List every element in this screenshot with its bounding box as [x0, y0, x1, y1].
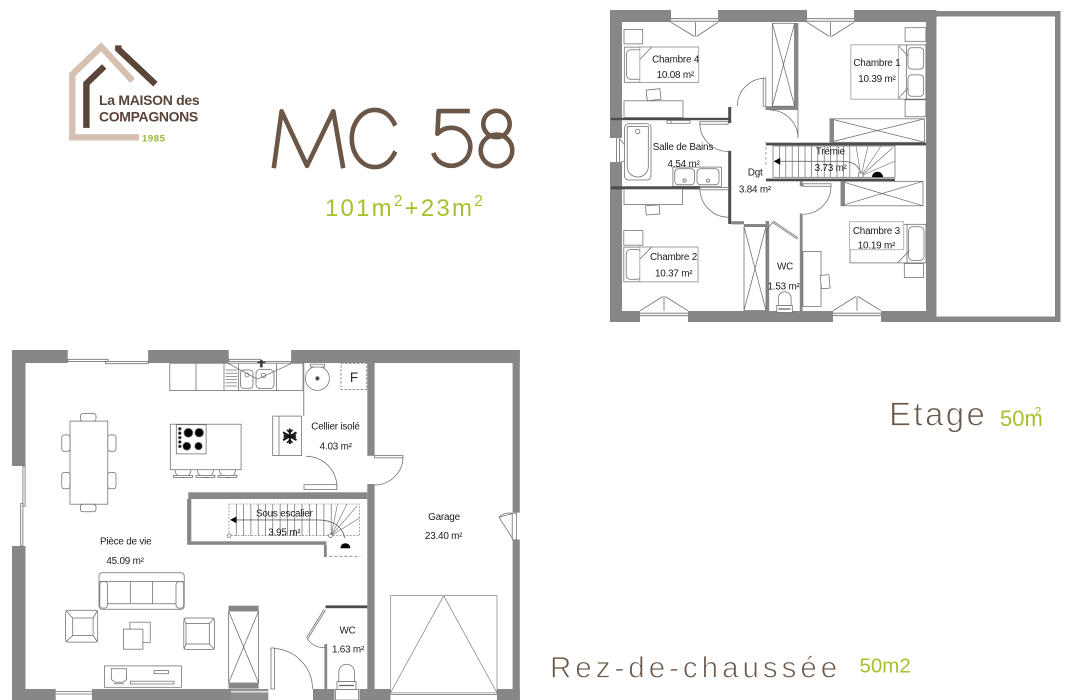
svg-text:Chambre 3: Chambre 3: [853, 226, 901, 237]
svg-text:Dgt: Dgt: [748, 168, 763, 179]
svg-text:3.95 m²: 3.95 m²: [268, 527, 301, 538]
svg-text:10.37 m²: 10.37 m²: [655, 269, 693, 280]
svg-text:Chambre 4: Chambre 4: [652, 54, 700, 65]
svg-text:1.53 m²: 1.53 m²: [768, 282, 801, 293]
svg-text:1.63 m²: 1.63 m²: [332, 644, 365, 655]
svg-text:Garage: Garage: [428, 512, 460, 523]
svg-text:1985: 1985: [142, 133, 166, 144]
svg-text:F: F: [350, 370, 358, 385]
svg-text:Sous escalier: Sous escalier: [256, 509, 314, 520]
svg-text:COMPAGNONS: COMPAGNONS: [99, 108, 198, 124]
svg-text:2: 2: [1035, 407, 1041, 419]
svg-text:Etage: Etage: [889, 396, 987, 433]
svg-text:45.09 m²: 45.09 m²: [106, 556, 144, 567]
svg-text:4.03 m²: 4.03 m²: [320, 441, 353, 452]
svg-text:La MAISON des: La MAISON des: [99, 92, 200, 108]
svg-text:Salle de Bains: Salle de Bains: [653, 142, 714, 153]
svg-text:Rez-de-chaussée: Rez-de-chaussée: [550, 652, 841, 685]
svg-text:101m2+23m2: 101m2+23m2: [325, 193, 485, 222]
svg-text:Trémie: Trémie: [816, 147, 846, 158]
svg-text:3.84 m²: 3.84 m²: [739, 185, 772, 196]
svg-text:Cellier isolé: Cellier isolé: [311, 422, 360, 433]
svg-text:10.39 m²: 10.39 m²: [858, 74, 896, 85]
svg-text:Chambre 2: Chambre 2: [650, 252, 697, 263]
svg-text:23.40 m²: 23.40 m²: [425, 531, 463, 542]
svg-text:10.08 m²: 10.08 m²: [657, 70, 695, 81]
svg-text:4.54 m²: 4.54 m²: [668, 159, 701, 170]
svg-text:Pièce de vie: Pièce de vie: [100, 536, 152, 547]
svg-text:WC: WC: [777, 262, 793, 273]
svg-text:10.19 m²: 10.19 m²: [858, 240, 896, 251]
svg-text:50m2: 50m2: [860, 655, 911, 678]
svg-text:3.73 m²: 3.73 m²: [815, 163, 848, 174]
svg-text:WC: WC: [339, 625, 355, 636]
svg-text:Chambre 1: Chambre 1: [853, 58, 901, 69]
